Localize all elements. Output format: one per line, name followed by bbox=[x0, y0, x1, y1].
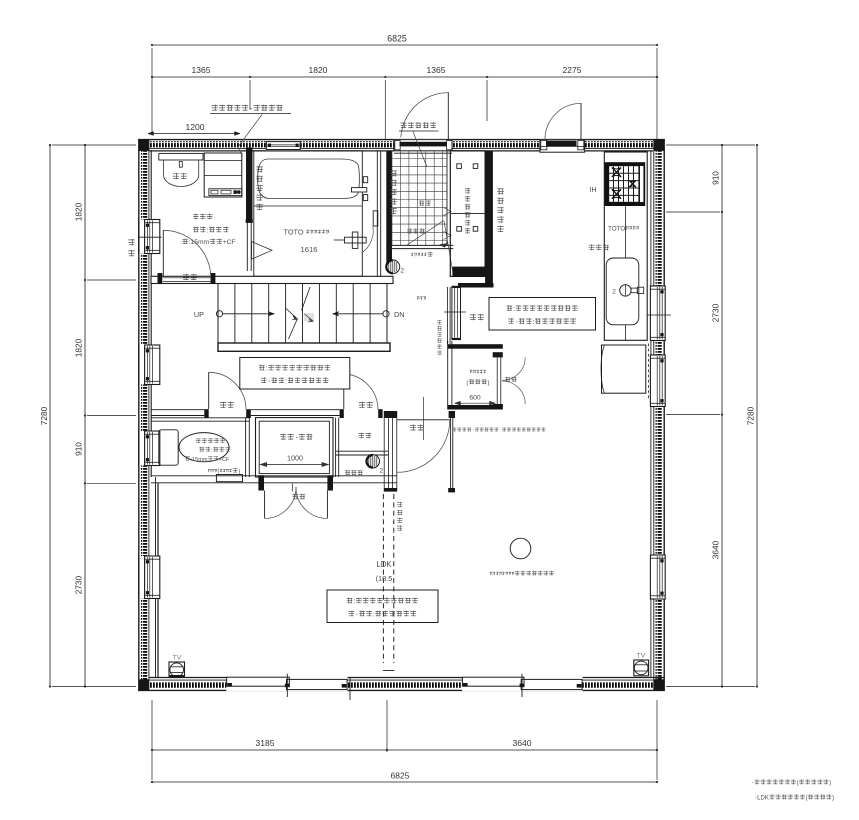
svg-text:+CF: +CF bbox=[219, 457, 230, 463]
svg-text:(: ( bbox=[806, 795, 808, 802]
svg-text:2275: 2275 bbox=[563, 65, 582, 75]
svg-text:2: 2 bbox=[380, 468, 384, 475]
svg-text::15mm: :15mm bbox=[189, 239, 210, 246]
svg-text:1365: 1365 bbox=[427, 65, 446, 75]
svg-text:LDK: LDK bbox=[757, 795, 769, 802]
svg-text::: : bbox=[207, 228, 209, 235]
svg-text::: : bbox=[285, 377, 287, 385]
svg-text:2730: 2730 bbox=[711, 303, 721, 322]
svg-text:910: 910 bbox=[74, 442, 84, 456]
svg-text:1000: 1000 bbox=[287, 454, 303, 463]
svg-text:): ) bbox=[829, 780, 831, 787]
svg-text:2: 2 bbox=[401, 268, 405, 275]
svg-text::: : bbox=[373, 611, 375, 619]
svg-text::15mm: :15mm bbox=[191, 457, 208, 463]
svg-text:): ) bbox=[832, 795, 834, 802]
svg-text:3185: 3185 bbox=[256, 738, 275, 748]
svg-text:): ) bbox=[487, 380, 489, 387]
svg-text:TV: TV bbox=[173, 655, 182, 662]
svg-text:TOTO: TOTO bbox=[608, 226, 625, 233]
svg-text:(18.5: (18.5 bbox=[376, 574, 393, 583]
svg-text:1820: 1820 bbox=[74, 202, 84, 221]
svg-text:(: ( bbox=[797, 780, 799, 787]
svg-text:1820: 1820 bbox=[74, 338, 84, 357]
svg-text:): ) bbox=[238, 469, 240, 475]
svg-text:IH: IH bbox=[590, 187, 597, 194]
svg-text:2: 2 bbox=[612, 289, 616, 296]
svg-text:LDK: LDK bbox=[376, 560, 392, 569]
svg-text:1616: 1616 bbox=[301, 245, 318, 254]
svg-text::: : bbox=[211, 447, 213, 454]
svg-text:910: 910 bbox=[711, 171, 721, 185]
svg-text:7280: 7280 bbox=[39, 406, 49, 425]
svg-text:1820: 1820 bbox=[309, 65, 328, 75]
svg-text:3640: 3640 bbox=[711, 540, 721, 559]
svg-text:6825: 6825 bbox=[387, 34, 407, 44]
svg-text:3640: 3640 bbox=[513, 738, 532, 748]
svg-text:7280: 7280 bbox=[746, 406, 756, 425]
svg-text:DN: DN bbox=[394, 310, 405, 319]
svg-text::: : bbox=[353, 598, 355, 606]
svg-text:600: 600 bbox=[469, 395, 481, 402]
svg-text:UP: UP bbox=[194, 310, 204, 319]
svg-text:(: ( bbox=[217, 469, 219, 475]
svg-text:1200: 1200 bbox=[186, 122, 205, 132]
svg-text::: : bbox=[513, 305, 515, 313]
svg-text:TV: TV bbox=[637, 653, 646, 660]
svg-text:+CF: +CF bbox=[223, 239, 236, 246]
svg-text:2730: 2730 bbox=[74, 575, 84, 594]
svg-text:6825: 6825 bbox=[391, 771, 410, 781]
svg-text::: : bbox=[533, 318, 535, 326]
svg-text:TOTO: TOTO bbox=[284, 228, 304, 237]
svg-text::: : bbox=[266, 365, 268, 373]
svg-text:1365: 1365 bbox=[192, 65, 211, 75]
